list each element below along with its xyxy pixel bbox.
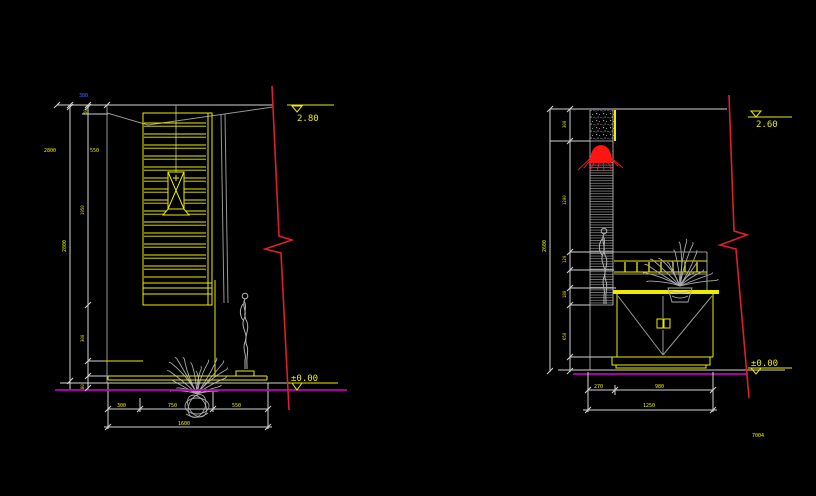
left-plant [167,357,228,420]
dim-side-left-2: 80 [80,384,85,389]
sheet-note: 7004 [752,433,764,439]
granite-texture [590,110,614,141]
level-floor-label-left: ±0.00 [291,374,318,384]
level-floor-label-right: ±0.00 [751,359,778,369]
left-section-break-line [265,86,292,410]
left-elevation: 2.80 ±0.00 2800 550 380 50 2800 1950 300… [44,86,347,429]
plant-leaf-tip [658,258,660,259]
right-elevation: 2.60 ±0.00 2600 300 1200 120 180 650 270… [542,95,792,439]
plant-leaf [172,391,197,394]
plant-leaf-tip [183,357,185,358]
level-top-label-right: 2.60 [756,120,778,130]
left-level-marker-top: 2.80 [287,105,334,124]
left-slat-panel [143,113,215,376]
plant-leaf-tip [646,281,648,282]
dim-bottom-right-1: 980 [655,384,664,390]
dim-side-right-2: 120 [562,255,567,263]
left-level-marker-floor: ±0.00 [288,374,338,390]
plant-leaf-tip [674,250,675,252]
right-plinth [612,357,710,368]
right-counter [613,290,719,294]
dim-bottom-total-right: 1250 [643,403,655,409]
dim-side-left-1: 300 [80,334,85,342]
plant-leaf-tip [686,239,687,241]
plant-leaf-tip [191,362,192,364]
cabinet-knob-right [664,319,670,328]
dim-side-right-3: 180 [562,290,567,298]
dim-total-height-left: 2800 [62,240,68,252]
left-statue [236,293,254,376]
right-level-marker-floor: ±0.00 [748,359,792,374]
plant-leaf-tip [711,273,712,274]
right-section-break-line [720,95,749,398]
plant-leaf-tip [679,242,680,244]
dim-bottom-left-2: 550 [232,403,241,409]
dim-side-right-1: 1200 [562,195,567,205]
dim-total-height-right: 2600 [542,240,548,252]
dim-side-left-0: 1950 [80,205,85,215]
plant-leaf-tip [717,279,719,280]
dim-bottom-right-0: 270 [594,384,603,390]
right-level-marker-top: 2.60 [748,111,792,130]
dim-label-b: 550 [90,148,99,154]
dim-bottom-total-left: 1600 [178,421,190,427]
dim-label-blue: 380 [79,93,88,99]
right-cabinet [617,294,713,357]
plant-leaf-tip [169,362,171,363]
plant-leaf-tip [196,371,197,373]
elevation-drawings: 2.80 ±0.00 2800 550 380 50 2800 1950 300… [0,0,816,496]
plant-leaf-tip [227,368,228,370]
cabinet-knob-left [657,319,663,328]
plant-leaf-tip [226,376,227,378]
plant-leaf-tip [175,357,177,358]
dim-bottom-left-1: 750 [168,403,177,409]
dim-bottom-left-0: 300 [117,403,126,409]
plant-leaf-tip [220,385,221,386]
dim-label-a: 2800 [44,148,56,154]
dim-side-right-0: 300 [562,120,567,128]
level-top-label-left: 2.80 [297,114,319,124]
statue-plinth [236,371,254,376]
cad-drawing-canvas: 2.80 ±0.00 2800 550 380 50 2800 1950 300… [0,0,816,496]
plant-leaf-tip [201,366,202,368]
dim-side-right-4: 650 [562,332,567,340]
